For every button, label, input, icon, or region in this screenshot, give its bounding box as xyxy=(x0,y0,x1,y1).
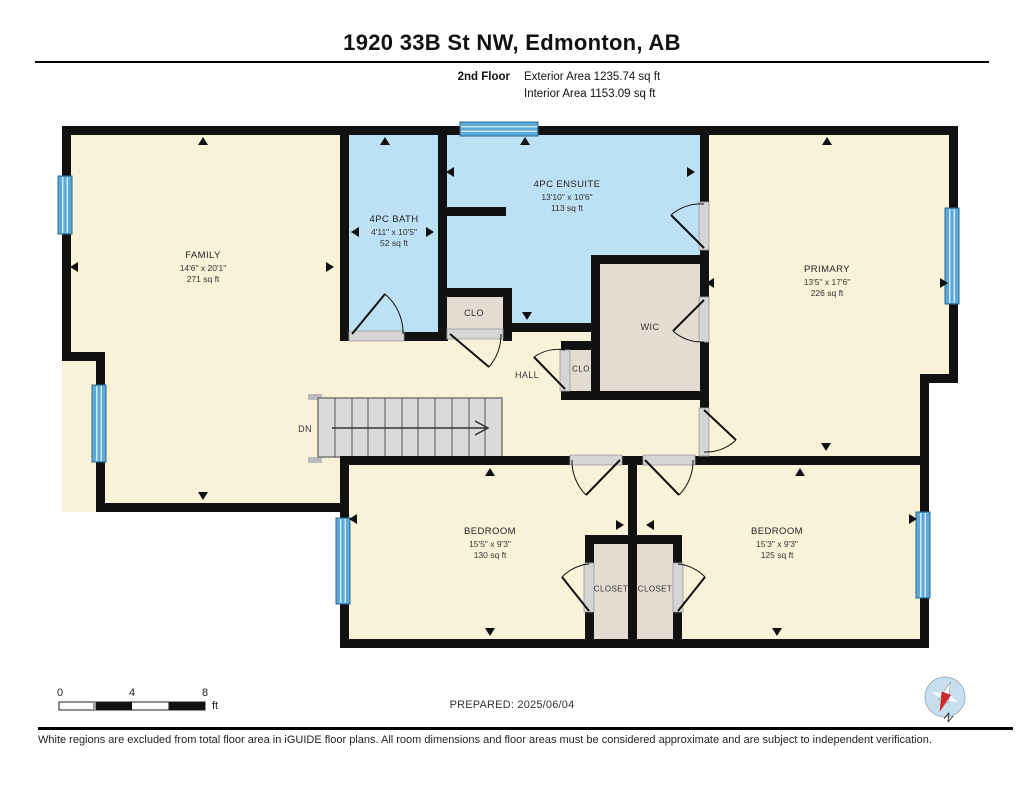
footer-divider xyxy=(38,727,1013,730)
stairs-dn-label: DN xyxy=(298,424,312,434)
scale-tick-4: 4 xyxy=(129,687,135,699)
room-fills xyxy=(62,126,958,648)
scale-bar-graphic xyxy=(59,702,205,710)
room-label-family: FAMILY 14'6" x 20'1" 271 sq ft xyxy=(180,250,227,286)
room-label-primary: PRIMARY 13'5" x 17'6" 226 sq ft xyxy=(804,264,851,300)
room-label-closet-left: CLOSET xyxy=(594,585,628,594)
scale-tick-0: 0 xyxy=(57,687,63,699)
stairs xyxy=(308,394,502,463)
room-label-closet-right: CLOSET xyxy=(638,585,672,594)
room-label-ensuite: 4PC ENSUITE 13'10" x 10'6" 113 sq ft xyxy=(534,179,601,215)
floor-plan xyxy=(0,0,1024,791)
room-label-clo-upper: CLO xyxy=(464,308,484,318)
prepared-date: PREPARED: 2025/06/04 xyxy=(450,699,575,711)
disclaimer-text: White regions are excluded from total fl… xyxy=(38,734,1013,746)
scale-tick-8: 8 xyxy=(202,687,208,699)
room-label-wic: WIC xyxy=(641,322,660,332)
compass-icon xyxy=(925,677,965,717)
room-label-hall: HALL xyxy=(515,370,539,380)
room-label-bedroom-left: BEDROOM 15'5" x 9'3" 130 sq ft xyxy=(464,526,516,562)
window xyxy=(916,512,930,598)
room-label-bath: 4PC BATH 4'11" x 10'5" 52 sq ft xyxy=(370,214,419,250)
room-label-clo-hall: CLO xyxy=(572,365,590,374)
window xyxy=(92,385,106,462)
window xyxy=(58,176,72,234)
window xyxy=(945,208,959,304)
room-label-bedroom-right: BEDROOM 15'3" x 9'3" 125 sq ft xyxy=(751,526,803,562)
window xyxy=(460,122,538,136)
window xyxy=(336,518,350,604)
scale-unit-label: ft xyxy=(212,700,218,712)
